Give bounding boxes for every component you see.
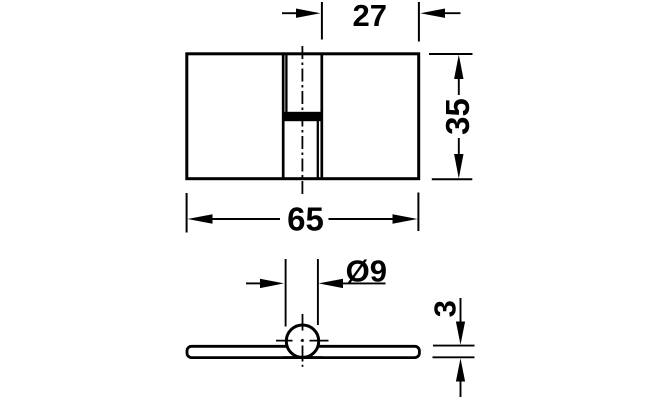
svg-text:65: 65	[287, 201, 324, 238]
svg-text:3: 3	[428, 300, 463, 317]
svg-text:Ø9: Ø9	[346, 254, 387, 289]
svg-text:35: 35	[439, 98, 476, 135]
svg-text:27: 27	[352, 0, 386, 33]
